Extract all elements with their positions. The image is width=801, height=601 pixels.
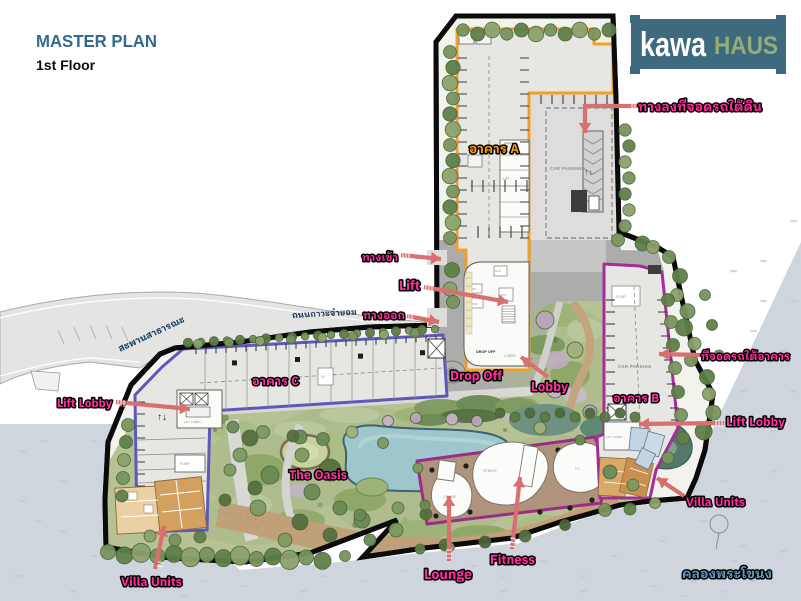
svg-text:CAR PARKING: CAR PARKING [550, 166, 584, 171]
svg-text:HAUS: HAUS [714, 32, 778, 60]
svg-text:LIFT: LIFT [501, 293, 507, 297]
svg-text:PUMP: PUMP [180, 462, 191, 466]
svg-text:FITNESS: FITNESS [483, 469, 496, 473]
svg-text:↑↓: ↑↓ [584, 167, 593, 177]
svg-text:LOBBY: LOBBY [504, 354, 517, 358]
svg-text:kawa: kawa [640, 26, 707, 64]
svg-text:1st Floor: 1st Floor [36, 57, 96, 73]
svg-text:DROP OFF: DROP OFF [476, 350, 496, 354]
svg-text:↑↓: ↑↓ [157, 412, 167, 423]
svg-text:LIFT LOBBY: LIFT LOBBY [184, 420, 201, 424]
svg-text:LIFT: LIFT [503, 177, 510, 181]
svg-text:MASTER PLAN: MASTER PLAN [36, 31, 157, 51]
svg-text:CAR PARKING: CAR PARKING [618, 364, 652, 369]
svg-text:MAIL: MAIL [495, 269, 502, 273]
svg-text:P.C.: P.C. [575, 467, 581, 471]
svg-text:LIFT LOBBY: LIFT LOBBY [606, 435, 623, 439]
svg-text:PUMP: PUMP [616, 295, 627, 299]
